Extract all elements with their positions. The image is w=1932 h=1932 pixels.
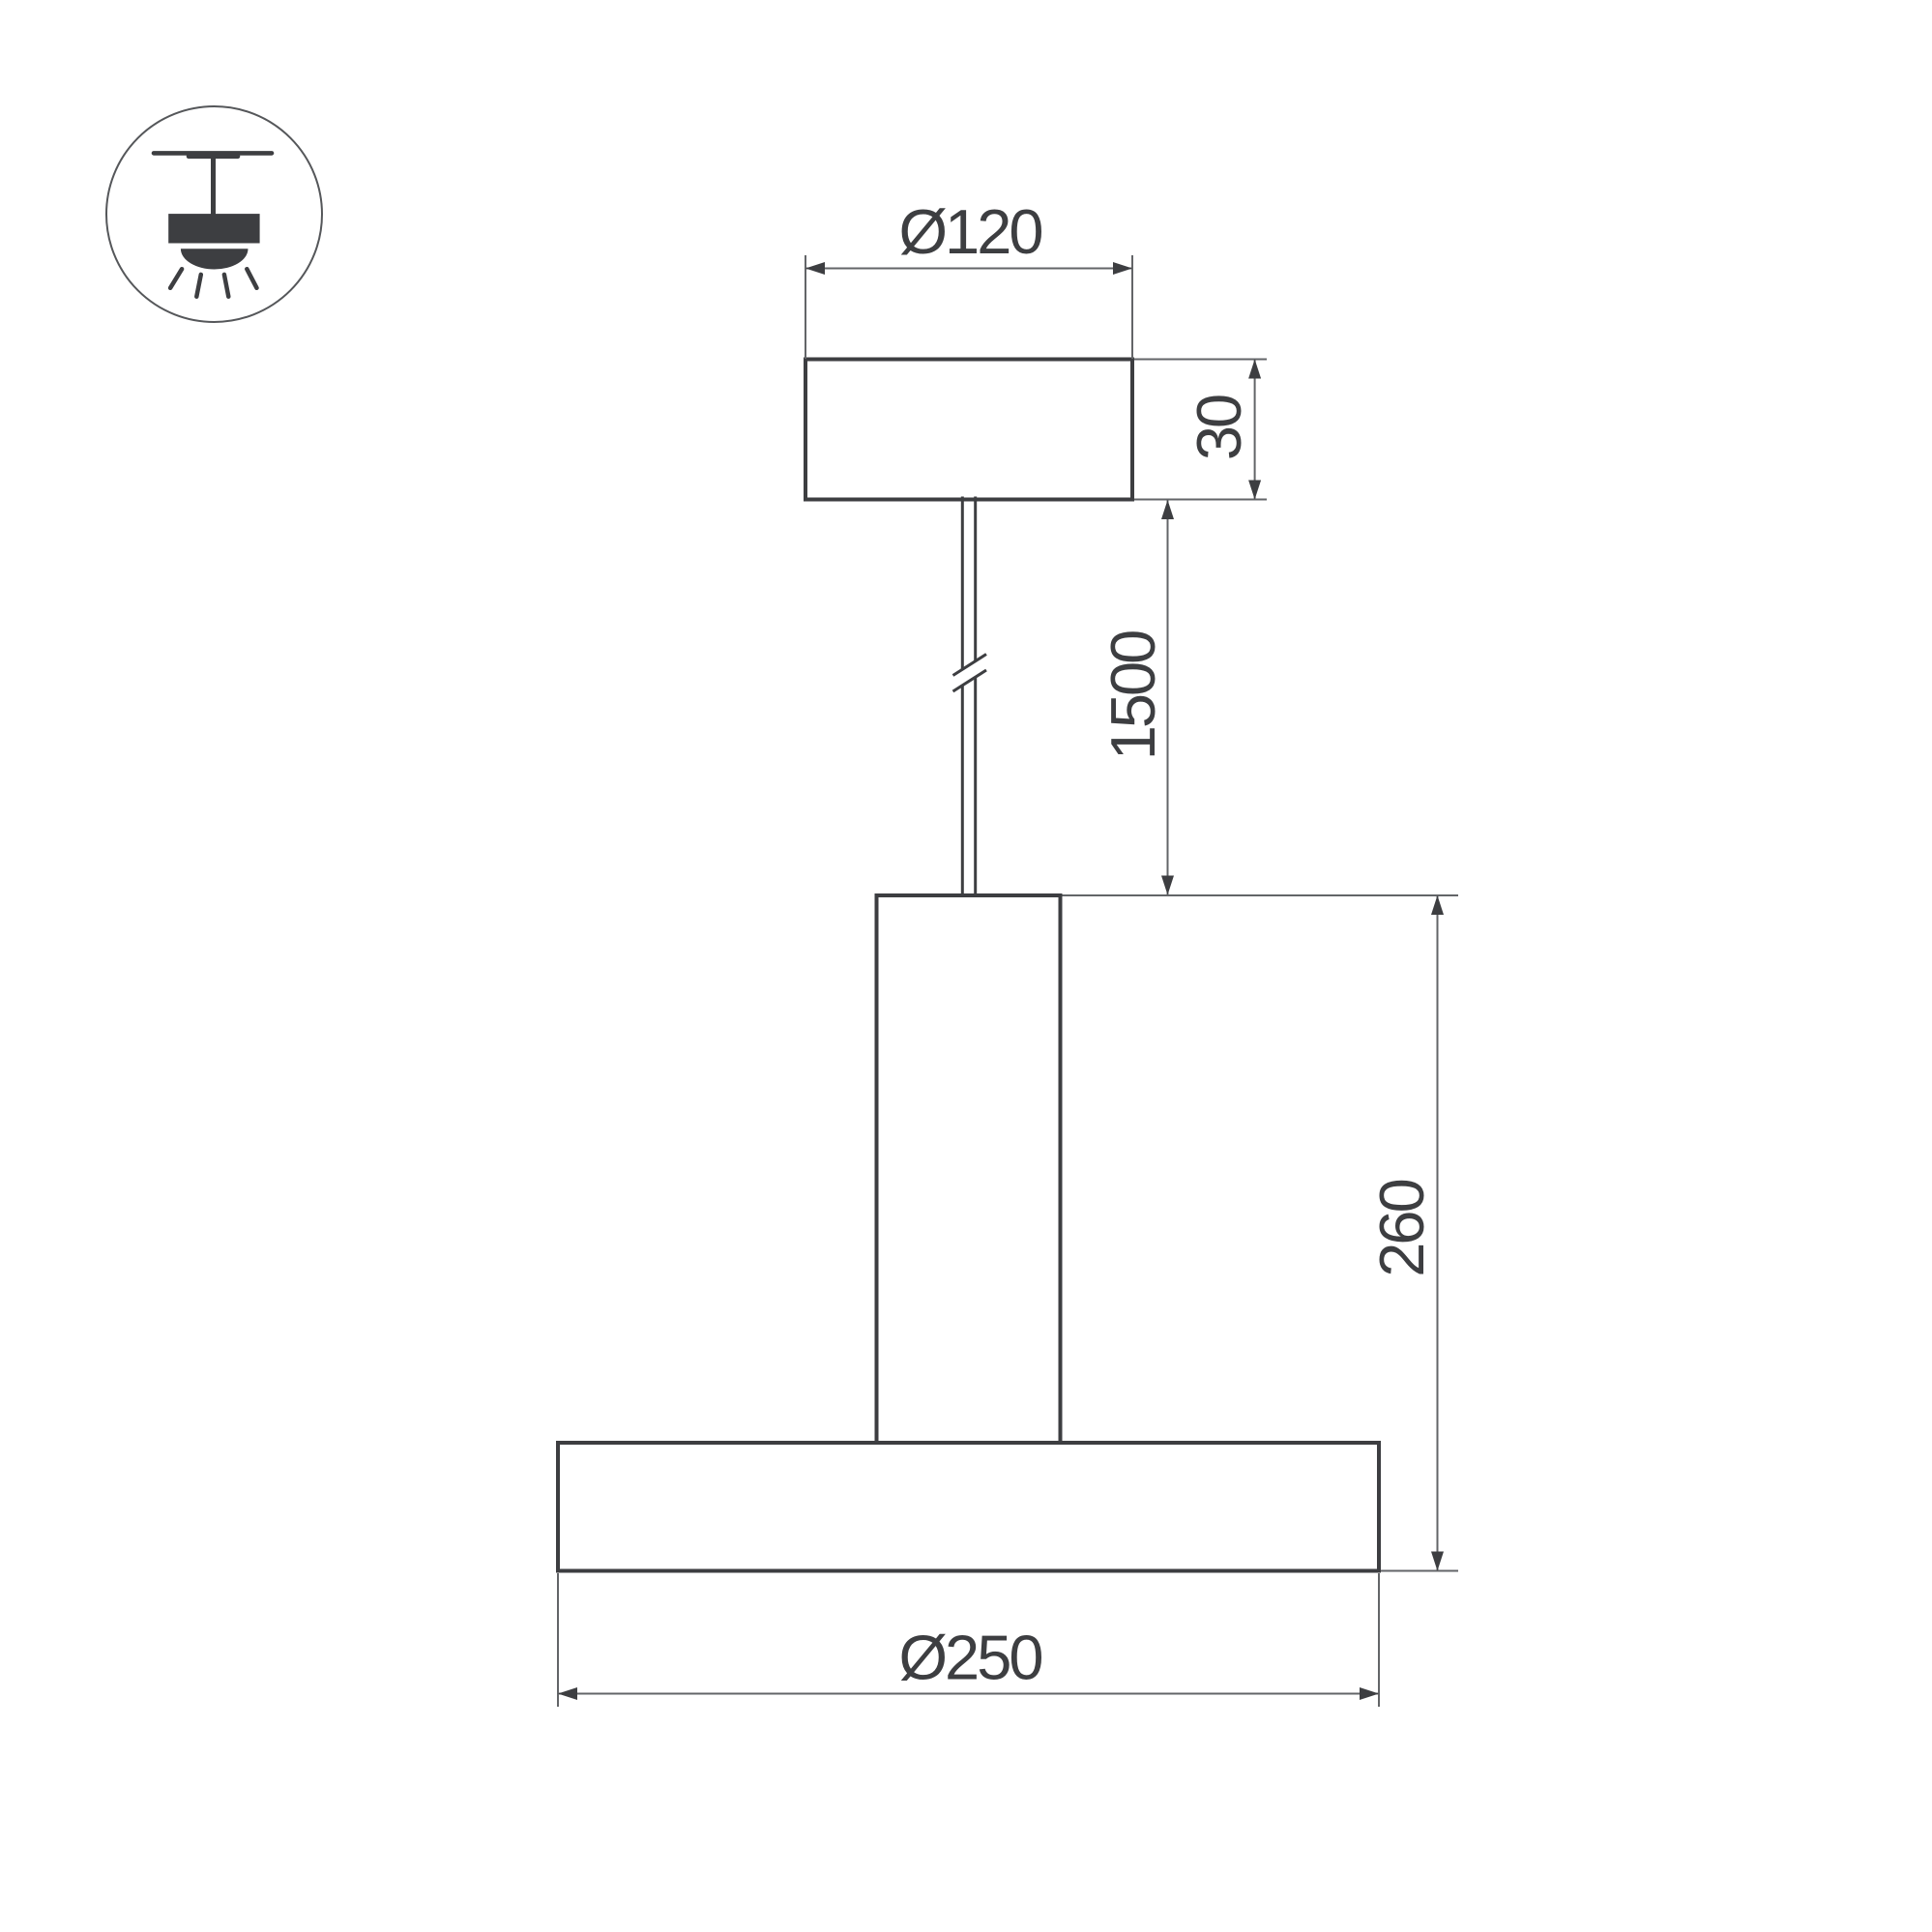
svg-text:Ø120: Ø120 (898, 196, 1041, 267)
svg-text:30: 30 (1184, 395, 1254, 460)
svg-text:1500: 1500 (1098, 631, 1168, 760)
svg-text:260: 260 (1366, 1180, 1437, 1276)
svg-text:Ø250: Ø250 (898, 1623, 1041, 1693)
